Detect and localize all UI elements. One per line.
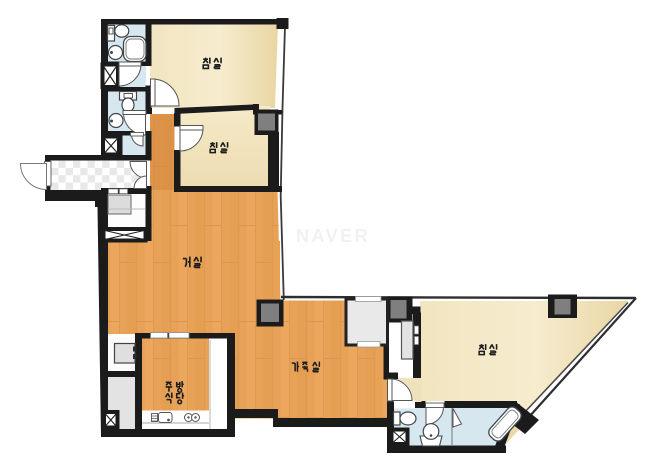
svg-text:NAVER: NAVER — [296, 226, 370, 246]
